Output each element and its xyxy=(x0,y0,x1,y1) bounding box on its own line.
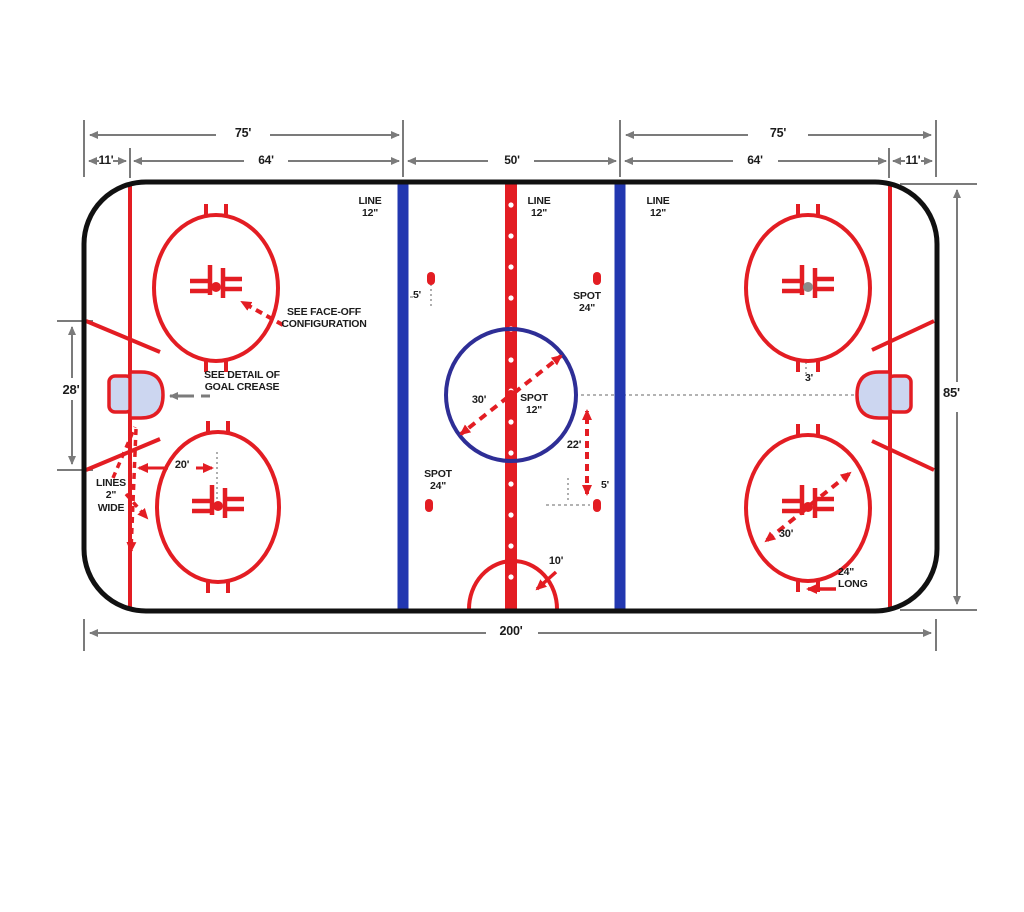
label-dim-11-left: 11' xyxy=(90,153,122,167)
label-dim-11-right: 11' xyxy=(897,153,929,167)
left-goal-and-crease xyxy=(109,372,163,418)
faceoff-config-top-right xyxy=(782,265,834,298)
faceoff-config-bottom-left xyxy=(192,485,244,518)
label-lines-2-wide-note: LINES 2" WIDE xyxy=(90,477,132,514)
right-goal-crease xyxy=(857,372,890,418)
label-dim-3-hash: 3' xyxy=(799,372,819,384)
label-line-12-center: LINE 12" xyxy=(521,195,557,220)
label-dim-20-faceoff: 20' xyxy=(168,459,196,472)
label-dim-64-right: 64' xyxy=(725,153,785,167)
red-dimension-arrows xyxy=(113,302,850,589)
rink-drawing xyxy=(0,0,1024,760)
label-spot-12-center: SPOT 12" xyxy=(514,392,554,417)
label-dim-85-right: 85' xyxy=(943,385,977,400)
label-dim-5-top-spot: 5' xyxy=(413,289,431,301)
label-line-12-right: LINE 12" xyxy=(640,195,676,220)
left-goal-crease xyxy=(130,372,163,418)
label-spot-24-top: SPOT 24" xyxy=(566,290,608,315)
label-see-crease-note: SEE DETAIL OF GOAL CREASE xyxy=(200,369,284,394)
faceoff-config-bottom-right xyxy=(782,485,834,518)
label-dim-24-long: 24" LONG xyxy=(838,566,886,591)
label-dim-64-left: 64' xyxy=(236,153,296,167)
label-dim-75-right: 75' xyxy=(748,126,808,141)
label-dim-5-bottom-spot: 5' xyxy=(601,479,619,491)
label-see-faceoff-note: SEE FACE-OFF CONFIGURATION xyxy=(277,306,371,331)
label-dim-30-center: 30' xyxy=(464,394,494,407)
label-dim-10-referee: 10' xyxy=(541,555,571,568)
faceoff-config-top-left xyxy=(190,265,242,298)
label-line-12-left: LINE 12" xyxy=(352,195,388,220)
label-dim-30-bottom-right: 30' xyxy=(771,528,801,541)
label-dim-200-bottom: 200' xyxy=(481,624,541,639)
label-dim-75-left: 75' xyxy=(213,126,273,141)
rink-diagram: 75'11'64'50'75'64'11'200'85'28'LINE 12"L… xyxy=(0,0,1024,912)
label-dim-50-center: 50' xyxy=(482,153,542,167)
label-dim-28-left: 28' xyxy=(54,382,88,397)
right-goal-and-crease xyxy=(857,372,911,418)
label-dim-22-neutral: 22' xyxy=(560,439,588,452)
label-spot-24-bottom: SPOT 24" xyxy=(417,468,459,493)
